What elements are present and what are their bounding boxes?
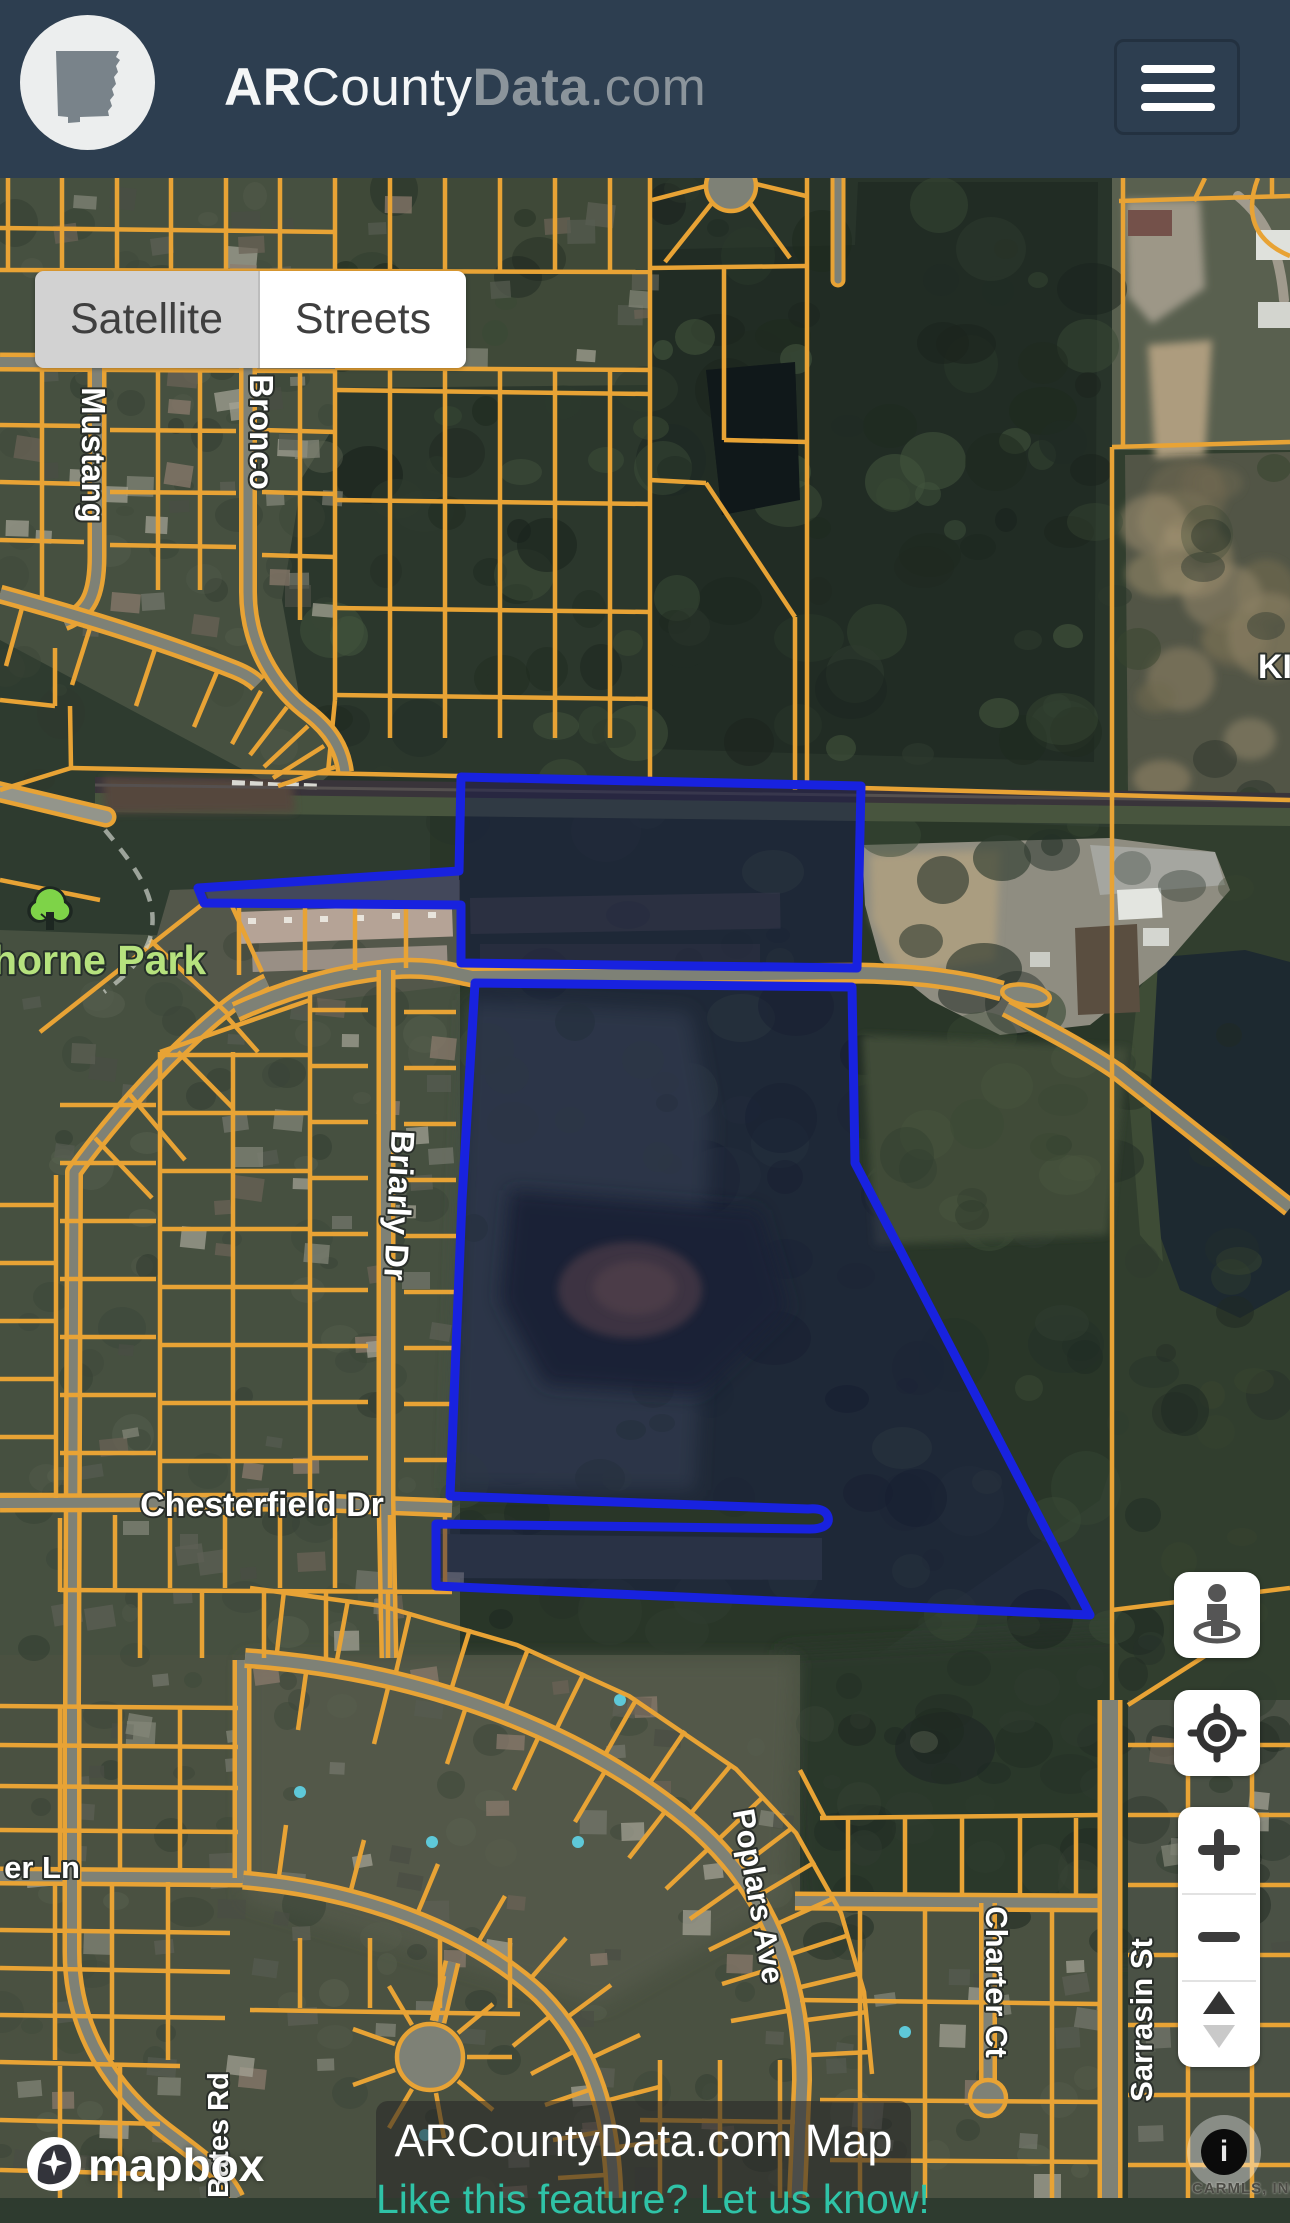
svg-text:horne Park: horne Park: [0, 937, 206, 983]
svg-text:Chesterfield Dr: Chesterfield Dr: [140, 1486, 384, 1524]
svg-text:Briarly Dr: Briarly Dr: [377, 1130, 422, 1282]
svg-text:KI: KI: [1258, 648, 1290, 686]
svg-text:Mustang: Mustang: [75, 387, 112, 523]
svg-text:mapbox: mapbox: [88, 2139, 265, 2191]
svg-text:er Ln: er Ln: [4, 1850, 80, 1885]
svg-text:Bronco: Bronco: [243, 374, 280, 490]
svg-text:Charter Ct: Charter Ct: [979, 1906, 1014, 2058]
svg-text:Sarrasin St: Sarrasin St: [1124, 1938, 1159, 2102]
